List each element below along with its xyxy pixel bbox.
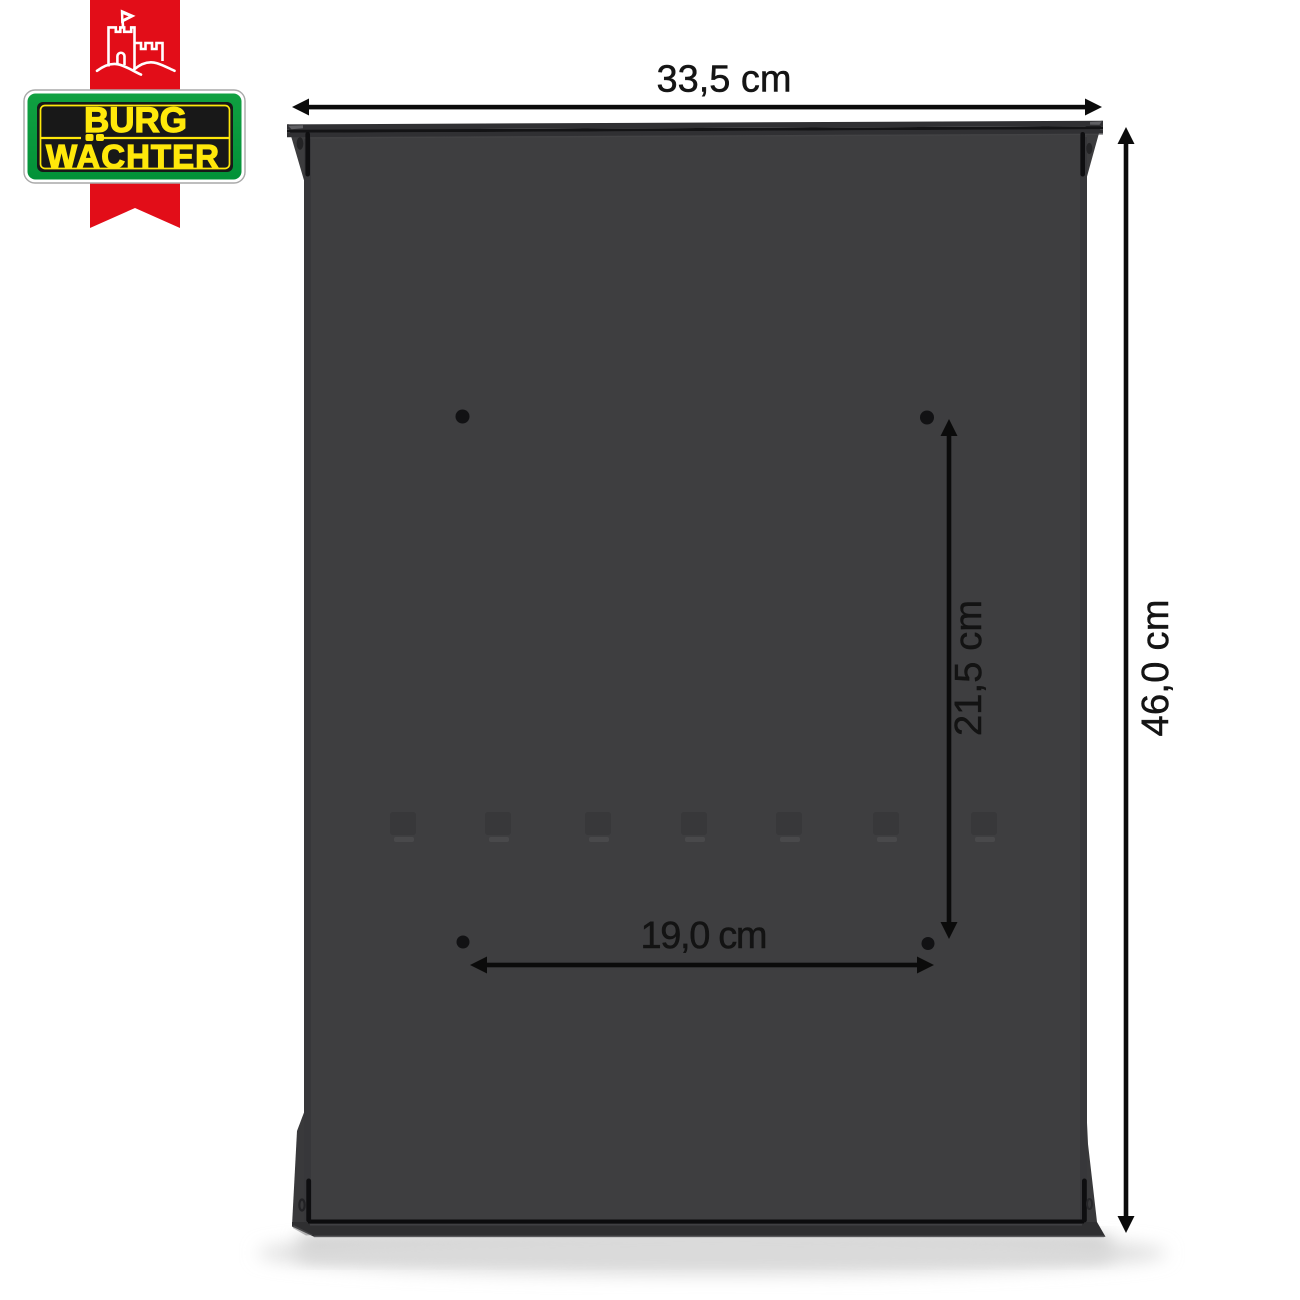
svg-text:46,0 cm: 46,0 cm [1135,600,1177,737]
svg-text:21,5 cm: 21,5 cm [948,600,990,736]
svg-text:19,0 cm: 19,0 cm [641,915,768,957]
svg-text:BURG: BURG [84,101,187,140]
svg-text:33,5 cm: 33,5 cm [657,59,792,101]
svg-text:WACHTER: WACHTER [46,138,219,175]
